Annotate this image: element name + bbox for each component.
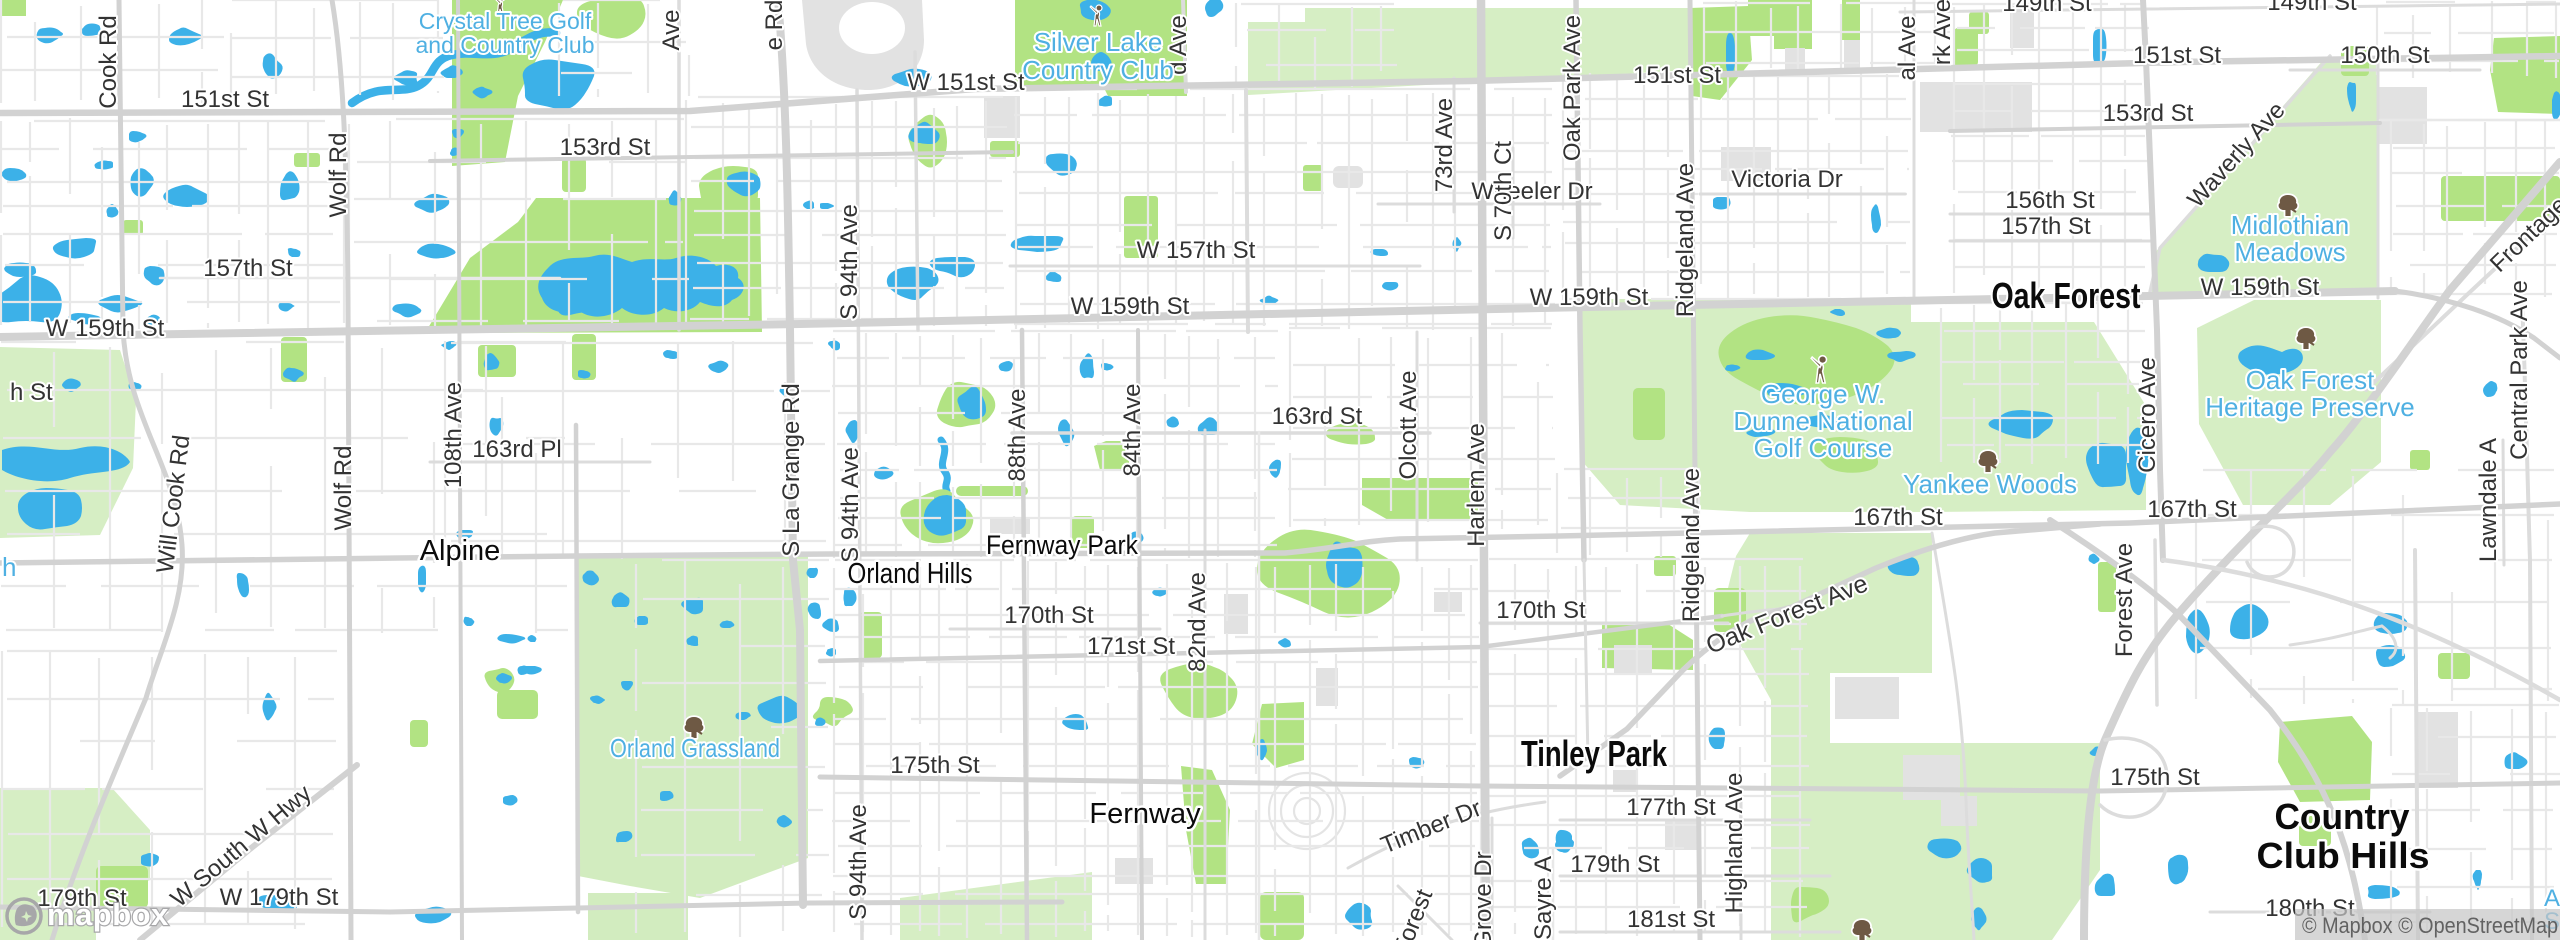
svg-text:108th Ave: 108th Ave	[440, 382, 467, 488]
svg-text:73rd Ave: 73rd Ave	[1431, 98, 1458, 192]
svg-text:Club Hills: Club Hills	[2257, 835, 2430, 876]
svg-text:163rd St: 163rd St	[1272, 403, 1363, 430]
svg-text:Sayre A: Sayre A	[1530, 856, 1557, 940]
svg-text:Golf Course: Golf Course	[1754, 433, 1893, 463]
svg-text:Ridgeland Ave: Ridgeland Ave	[1678, 468, 1705, 622]
svg-text:167th St: 167th St	[1853, 504, 1943, 531]
svg-text:Orland Hills: Orland Hills	[848, 558, 973, 590]
svg-text:Forest Ave: Forest Ave	[2111, 543, 2138, 657]
svg-text:149th St: 149th St	[2267, 0, 2357, 16]
svg-text:e Rd: e Rd	[761, 0, 788, 50]
svg-text:mapbox: mapbox	[47, 897, 169, 932]
svg-text:84th Ave: 84th Ave	[1119, 384, 1146, 477]
svg-text:163rd Pl: 163rd Pl	[472, 436, 561, 463]
svg-text:rk Ave: rk Ave	[1929, 0, 1956, 65]
svg-text:Harlem Ave: Harlem Ave	[1463, 423, 1490, 547]
svg-text:W 159th St: W 159th St	[1071, 293, 1190, 320]
svg-text:175th St: 175th St	[890, 752, 980, 779]
svg-text:Meadows: Meadows	[2234, 237, 2345, 267]
svg-text:149th St: 149th St	[2002, 0, 2092, 17]
svg-text:George W.: George W.	[1761, 379, 1885, 409]
svg-text:153rd St: 153rd St	[560, 134, 651, 161]
svg-text:Lawndale A: Lawndale A	[2475, 438, 2502, 562]
svg-text:Ridgeland Ave: Ridgeland Ave	[1672, 163, 1699, 317]
svg-text:Crystal Tree Golf: Crystal Tree Golf	[419, 8, 592, 34]
svg-text:W 157th St: W 157th St	[1137, 237, 1256, 264]
svg-text:82nd Ave: 82nd Ave	[1184, 572, 1211, 672]
svg-text:Olcott Ave: Olcott Ave	[1395, 371, 1422, 480]
svg-text:170th St: 170th St	[1496, 597, 1586, 624]
svg-text:157th St: 157th St	[203, 255, 293, 282]
svg-text:153rd St: 153rd St	[2103, 100, 2194, 127]
svg-text:S 94th Ave: S 94th Ave	[845, 804, 872, 920]
svg-text:Central Park Ave: Central Park Ave	[2506, 280, 2533, 460]
svg-text:Heritage Preserve: Heritage Preserve	[2205, 392, 2415, 422]
svg-text:151st St: 151st St	[181, 86, 269, 113]
svg-text:Cook Rd: Cook Rd	[95, 15, 122, 108]
svg-text:Ave: Ave	[658, 10, 685, 51]
svg-text:170th St: 170th St	[1004, 602, 1094, 629]
svg-text:Oak Forest: Oak Forest	[1992, 275, 2141, 316]
svg-text:Country: Country	[2275, 796, 2410, 837]
svg-text:h St: h St	[10, 379, 53, 406]
svg-text:Tinley Park: Tinley Park	[1521, 733, 1668, 774]
svg-text:Highland Ave: Highland Ave	[1721, 773, 1748, 914]
svg-text:177th St: 177th St	[1626, 794, 1716, 821]
svg-text:Dunne National: Dunne National	[1733, 406, 1912, 436]
svg-text:Country Club: Country Club	[1022, 55, 1174, 85]
svg-text:Oak Park Ave: Oak Park Ave	[1559, 15, 1586, 161]
svg-text:S La Grange Rd: S La Grange Rd	[778, 383, 805, 556]
svg-text:Silver Lake: Silver Lake	[1034, 27, 1163, 57]
svg-text:© Mapbox © OpenStreetMap: © Mapbox © OpenStreetMap	[2302, 913, 2558, 938]
svg-text:Orland Grassland: Orland Grassland	[610, 733, 780, 763]
svg-text:171st St: 171st St	[1087, 633, 1175, 660]
svg-text:Midlothian: Midlothian	[2231, 210, 2350, 240]
svg-text:Yankee Woods: Yankee Woods	[1903, 469, 2077, 499]
svg-text:h: h	[2, 552, 16, 582]
svg-text:W 159th St: W 159th St	[46, 315, 165, 342]
svg-text:al Ave: al Ave	[1894, 16, 1921, 81]
svg-text:Grove Dr: Grove Dr	[1470, 851, 1497, 940]
svg-text:Cicero Ave: Cicero Ave	[2134, 357, 2161, 473]
svg-text:W 159th St: W 159th St	[1530, 284, 1649, 311]
svg-text:167th St: 167th St	[2147, 496, 2237, 523]
svg-text:88th Ave: 88th Ave	[1004, 389, 1031, 482]
svg-text:151st St: 151st St	[1633, 62, 1721, 89]
svg-text:175th St: 175th St	[2110, 764, 2200, 791]
svg-text:150th St: 150th St	[2340, 42, 2430, 69]
svg-text:Wolf Rd: Wolf Rd	[330, 446, 357, 531]
svg-text:Fernway: Fernway	[1089, 798, 1201, 830]
svg-text:S 70th Ct: S 70th Ct	[1490, 141, 1517, 241]
svg-text:181st St: 181st St	[1627, 906, 1715, 933]
svg-text:W 151st St: W 151st St	[907, 69, 1025, 96]
svg-text:S 94th Ave: S 94th Ave	[837, 447, 864, 563]
svg-text:and Country Club: and Country Club	[416, 32, 595, 58]
svg-text:S 94th Ave: S 94th Ave	[836, 204, 863, 320]
svg-text:Oak Forest: Oak Forest	[2246, 365, 2375, 395]
svg-text:W 179th St: W 179th St	[220, 884, 339, 911]
svg-text:Wolf Rd: Wolf Rd	[325, 133, 352, 218]
svg-text:156th St: 156th St	[2005, 187, 2095, 214]
svg-text:Alpine: Alpine	[420, 535, 501, 567]
svg-text:Fernway Park: Fernway Park	[986, 530, 1138, 560]
svg-text:Victoria Dr: Victoria Dr	[1731, 166, 1843, 193]
svg-text:151st St: 151st St	[2133, 42, 2221, 69]
svg-text:157th St: 157th St	[2001, 213, 2091, 240]
svg-text:W 159th St: W 159th St	[2201, 274, 2320, 301]
svg-text:179th St: 179th St	[1570, 851, 1660, 878]
